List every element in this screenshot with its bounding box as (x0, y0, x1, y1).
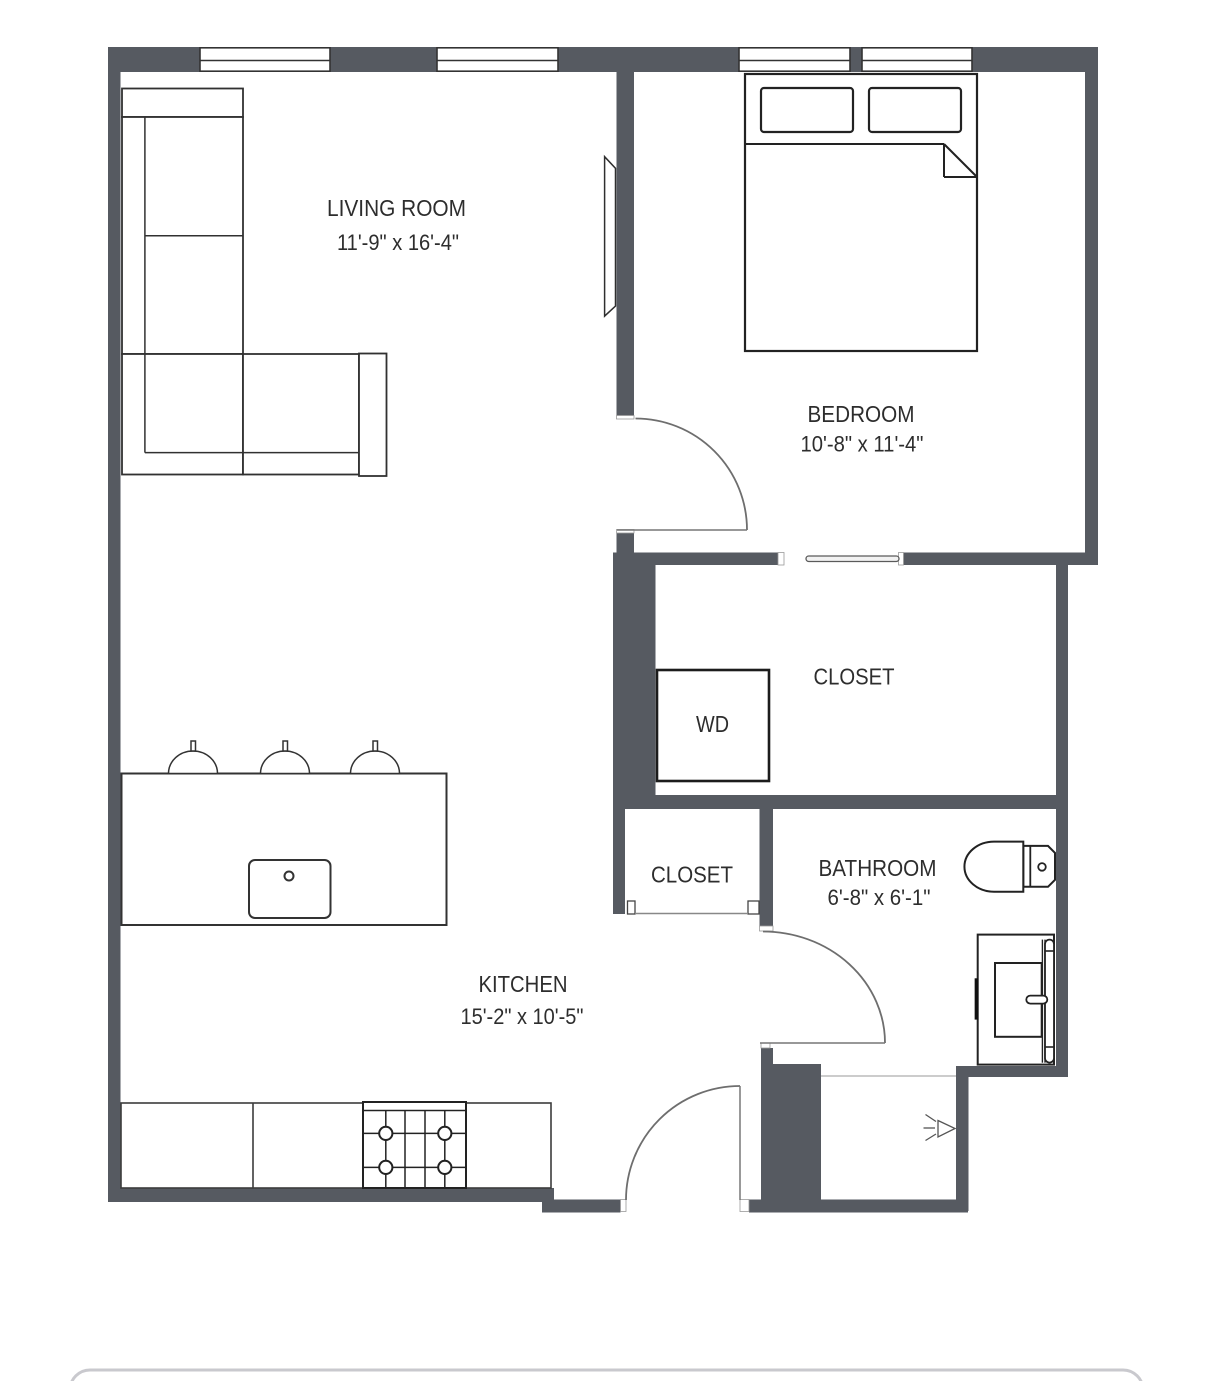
svg-text:LIVING ROOM: LIVING ROOM (327, 195, 466, 221)
svg-text:BEDROOM: BEDROOM (808, 401, 915, 427)
svg-text:CLOSET: CLOSET (651, 862, 733, 888)
svg-text:10'-8" x 11'-4": 10'-8" x 11'-4" (801, 432, 924, 457)
svg-text:11'-9" x 16'-4": 11'-9" x 16'-4" (337, 230, 459, 255)
svg-text:WD: WD (696, 711, 729, 737)
svg-text:CLOSET: CLOSET (814, 664, 895, 690)
svg-text:6'-8" x 6'-1": 6'-8" x 6'-1" (828, 885, 931, 910)
svg-text:KITCHEN: KITCHEN (479, 971, 568, 997)
svg-text:15'-2" x 10'-5": 15'-2" x 10'-5" (461, 1004, 584, 1029)
svg-text:BATHROOM: BATHROOM (819, 855, 937, 881)
